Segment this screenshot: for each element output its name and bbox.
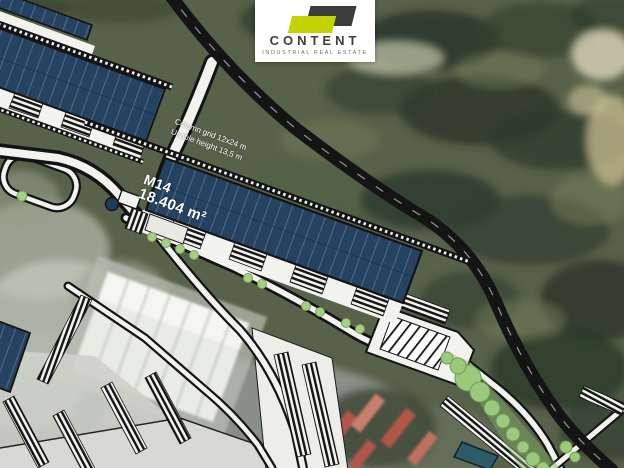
logo-brand-text: CONTENT (255, 33, 375, 48)
content-logo-icon (268, 6, 362, 34)
pond (106, 198, 119, 211)
logo-lime-block (288, 16, 336, 33)
logo-tagline-text: INDUSTRIAL REAL ESTATE (255, 50, 375, 56)
content-logo: CONTENT INDUSTRIAL REAL ESTATE (255, 0, 375, 62)
site-plan-screenshot: Column grid 12x24 m Usable height 13,5 m… (0, 0, 624, 468)
site-plan-svg (0, 0, 624, 468)
